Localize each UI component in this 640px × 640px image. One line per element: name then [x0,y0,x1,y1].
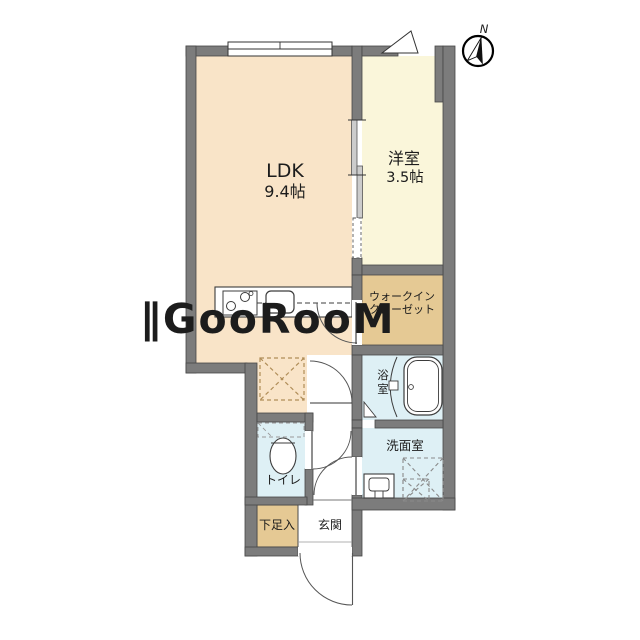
watermark-text: ∥GooRooM [140,295,395,343]
compass-north-label: N [480,22,489,36]
partition-dashed-section [353,218,361,258]
shoe-storage-label: 下足入 [259,518,295,532]
compass: N [463,22,493,66]
toilet-label: トイレ [265,473,301,487]
floorplan-drawing: LDK 9.4帖 洋室 3.5帖 ウォークイン クローゼット 浴 室 洗面室 ト… [0,0,640,640]
bathroom-label-char1: 浴 [377,368,389,382]
ldk-vestibule-floor [307,355,352,415]
washroom-label: 洗面室 [386,438,424,453]
entrance-door [298,500,353,605]
bedroom-label: 洋室 [388,149,420,168]
toilet-door [305,431,351,469]
bedroom-size-label: 3.5帖 [386,169,424,186]
washroom-door [314,457,362,495]
window-ldk-top [228,42,332,56]
bathroom-label-char2: 室 [377,382,389,396]
bath-door-handle [389,381,398,390]
sliding-panel [352,120,358,175]
ldk-label: LDK [266,160,304,182]
floorplan-canvas: LDK 9.4帖 洋室 3.5帖 ウォークイン クローゼット 浴 室 洗面室 ト… [0,0,640,640]
bathtub-drain-icon [409,385,414,390]
sliding-panel [357,166,363,218]
entrance-label: 玄関 [318,517,342,532]
ldk-size-label: 9.4帖 [264,182,305,201]
bedroom-door-leaf [382,31,418,53]
room-ldk-lower [257,363,307,415]
